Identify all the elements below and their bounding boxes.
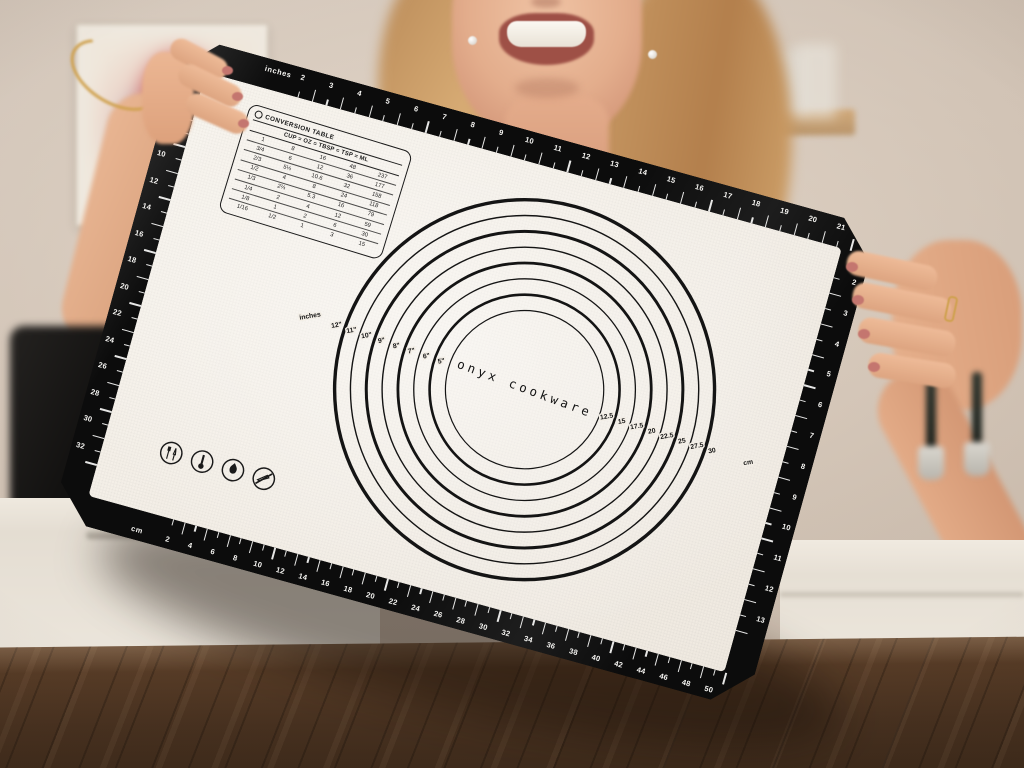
ruler-tick-minor <box>420 588 423 594</box>
ruler-tick-major <box>652 184 656 196</box>
ruler-number: 30 <box>473 620 493 633</box>
ruler-number: 20 <box>117 280 133 292</box>
ruler-number: 9 <box>491 126 511 139</box>
ruler-tick-major <box>226 535 230 547</box>
ruler-number: 32 <box>73 439 89 451</box>
ruler-number: 20 <box>361 589 381 602</box>
ruler-tick-minor <box>783 461 789 464</box>
ruler-tick-major <box>340 98 344 110</box>
chin-shadow <box>515 78 579 98</box>
ruler-number: 40 <box>586 651 606 664</box>
ruler-number: 44 <box>631 664 651 677</box>
ruler-tick-minor <box>510 613 513 619</box>
ruler-tick-minor <box>766 522 772 525</box>
ruler-number: 6 <box>203 545 223 558</box>
ruler-tick-major <box>595 168 599 180</box>
ruler-tick-major <box>829 293 841 297</box>
ruler-number: 14 <box>633 165 653 178</box>
circle-inch-label: 11" <box>346 326 357 335</box>
circle-cm-label: 17.5 <box>630 422 644 431</box>
ruler-tick-major <box>793 223 797 235</box>
circle-bullet-icon <box>254 110 264 120</box>
ruler-tick-major <box>680 192 684 204</box>
ruler-unit-label: inches <box>264 64 293 80</box>
ruler-number: 24 <box>102 333 118 345</box>
circle-unit-label-cm: cm <box>743 459 754 468</box>
ruler-tick-major <box>316 560 320 572</box>
circle-cm-label: 30 <box>708 447 717 455</box>
fingernail <box>868 362 880 372</box>
ruler-tick-major <box>587 635 591 647</box>
ruler-tick-major <box>770 507 782 511</box>
ruler-tick-minor <box>465 601 468 607</box>
circle-inch-label: 8" <box>392 342 400 350</box>
ruler-tick-major <box>144 249 156 253</box>
ruler-tick-major <box>610 641 614 653</box>
ruler-number: 4 <box>350 87 370 100</box>
ruler-number: 19 <box>775 204 795 217</box>
ruler-tick-minor <box>690 663 693 669</box>
ruler-tick-minor <box>749 584 755 587</box>
ruler-number: 10 <box>154 147 170 159</box>
ruler-number: 14 <box>293 570 313 583</box>
candle <box>972 372 982 450</box>
ruler-tick-major <box>821 323 833 327</box>
ruler-number: 17 <box>718 189 738 202</box>
ruler-tick-minor <box>757 553 763 556</box>
ruler-number: 8 <box>463 118 483 131</box>
ruler-tick-minor <box>217 532 220 538</box>
pearl-earring <box>648 50 657 59</box>
ruler-tick-major <box>85 461 97 465</box>
ruler-tick-major <box>737 208 741 220</box>
ruler-tick-major <box>765 215 769 227</box>
ruler-number: 12 <box>270 564 290 577</box>
ruler-tick-minor <box>622 645 625 651</box>
ruler-tick-major <box>407 585 411 597</box>
ruler-tick-major <box>204 529 208 541</box>
ruler-tick-major <box>181 523 185 535</box>
ruler-number: 38 <box>564 645 584 658</box>
ruler-number: 34 <box>519 633 539 646</box>
fingernail <box>846 262 858 272</box>
ruler-unit-label: cm <box>130 524 144 536</box>
ruler-number: 8 <box>795 460 811 472</box>
ruler-tick-minor <box>262 544 265 550</box>
ruler-tick-minor <box>668 657 671 663</box>
ruler-number: 11 <box>770 552 786 564</box>
ruler-number: 10 <box>778 521 794 533</box>
ruler-tick-major <box>804 384 816 388</box>
fingernail <box>238 119 249 128</box>
ruler-tick-major <box>565 629 569 641</box>
kitchen-photo-scene: inches 23456789101112131415161718192021 … <box>0 0 1024 768</box>
ruler-tick-minor <box>487 607 490 613</box>
ruler-number: 5 <box>821 368 837 380</box>
fingernail <box>858 329 870 339</box>
ruler-tick-major <box>722 673 726 685</box>
ruler-number: 10 <box>248 557 268 570</box>
ruler-tick-major <box>92 435 104 439</box>
ruler-tick-major <box>850 239 854 251</box>
ruler-tick-major <box>677 660 681 672</box>
ruler-tick-major <box>519 616 523 628</box>
ruler-tick-major <box>384 579 388 591</box>
candle-holder <box>964 442 990 476</box>
fingernail <box>222 66 233 75</box>
ruler-tick-major <box>538 153 542 165</box>
ruler-number: 24 <box>406 601 426 614</box>
ruler-tick-minor <box>791 430 797 433</box>
ruler-tick-minor <box>740 614 746 617</box>
ruler-tick-minor <box>713 670 716 676</box>
ruler-tick-major <box>368 105 372 117</box>
circle-inch-label: 12" <box>331 321 343 330</box>
candle-holder <box>918 446 944 480</box>
ruler-tick-minor <box>817 338 823 341</box>
ruler-number: 26 <box>95 359 111 371</box>
ruler-tick-minor <box>555 626 558 632</box>
ruler-tick-major <box>736 630 748 634</box>
ruler-number: 22 <box>383 595 403 608</box>
ruler-number: 18 <box>338 582 358 595</box>
ruler-number: 16 <box>131 227 147 239</box>
ruler-number: 12 <box>761 583 777 595</box>
ruler-number: 4 <box>829 337 845 349</box>
circle-inch-label: 10" <box>361 332 373 341</box>
ruler-tick-major <box>510 145 514 157</box>
ruler-tick-minor <box>352 569 355 575</box>
ruler-number: 36 <box>541 639 561 652</box>
ruler-number: 18 <box>124 253 140 265</box>
ruler-tick-major <box>397 113 401 125</box>
ruler-number: 26 <box>428 607 448 620</box>
ruler-tick-major <box>787 446 799 450</box>
ruler-number: 16 <box>690 181 710 194</box>
ruler-number: 48 <box>676 676 696 689</box>
ruler-tick-major <box>151 223 163 227</box>
counter-edge <box>780 592 1024 597</box>
ruler-number: 20 <box>803 212 823 225</box>
ruler-tick-major <box>249 541 253 553</box>
ruler-number: 32 <box>496 626 516 639</box>
ruler-tick-major <box>778 476 790 480</box>
ruler-tick-major <box>107 382 119 386</box>
ruler-tick-major <box>271 548 275 560</box>
ruler-tick-major <box>795 415 807 419</box>
ruler-tick-major <box>700 666 704 678</box>
ruler-number: 12 <box>146 174 162 186</box>
circle-cm-label: 22.5 <box>660 432 674 441</box>
teeth <box>507 21 586 47</box>
ruler-number: 8 <box>225 551 245 564</box>
ruler-number: 4 <box>180 539 200 552</box>
ruler-tick-major <box>623 176 627 188</box>
ruler-tick-major <box>115 355 127 359</box>
ruler-tick-major <box>425 121 429 133</box>
ruler-number: 2 <box>158 532 178 545</box>
ruler-tick-major <box>497 610 501 622</box>
ruler-number: 28 <box>87 386 103 398</box>
ruler-tick-major <box>429 591 433 603</box>
ruler-tick-major <box>312 90 316 102</box>
ruler-tick-major <box>294 554 298 566</box>
ruler-tick-major <box>474 604 478 616</box>
ruler-tick-major <box>129 302 141 306</box>
ruler-number: 18 <box>746 197 766 210</box>
ruler-number: 6 <box>406 102 426 115</box>
ruler-number: 15 <box>661 173 681 186</box>
ruler-tick-major <box>753 568 765 572</box>
ruler-tick-major <box>482 137 486 149</box>
ruler-tick-minor <box>397 582 400 588</box>
ruler-number: 6 <box>812 399 828 411</box>
ruler-tick-minor <box>329 563 332 569</box>
circle-inch-label: 9" <box>377 337 385 345</box>
ruler-tick-minor <box>442 594 445 600</box>
ruler-number: 13 <box>753 613 769 625</box>
ruler-number: 7 <box>804 429 820 441</box>
ruler-tick-major <box>159 196 171 200</box>
ruler-tick-major <box>137 276 149 280</box>
ruler-tick-minor <box>172 519 175 525</box>
ruler-tick-minor <box>800 400 806 403</box>
ruler-tick-major <box>655 654 659 666</box>
ruler-tick-major <box>122 329 134 333</box>
ruler-number: 42 <box>609 658 629 671</box>
ruler-number: 50 <box>699 683 719 696</box>
ruler-tick-minor <box>808 369 814 372</box>
pearl-earring <box>468 36 477 45</box>
ruler-number: 3 <box>321 79 341 92</box>
ruler-number: 7 <box>435 110 455 123</box>
ruler-number: 16 <box>316 576 336 589</box>
ruler-tick-major <box>812 354 824 358</box>
ruler-number: 2 <box>293 71 313 84</box>
circle-cm-label: 20 <box>648 428 657 436</box>
circle-unit-label-inches: inches <box>299 311 322 321</box>
ruler-tick-minor <box>194 526 197 532</box>
ruler-number: 28 <box>451 614 471 627</box>
ruler-tick-minor <box>600 638 603 644</box>
ruler-number: 10 <box>520 134 540 147</box>
ruler-number: 30 <box>80 412 96 424</box>
ruler-number: 5 <box>378 94 398 107</box>
ruler-tick-minor <box>307 557 310 563</box>
ruler-number: 22 <box>109 306 125 318</box>
fingernail <box>852 295 864 305</box>
fingernail <box>232 92 243 101</box>
ruler-number: 9 <box>787 491 803 503</box>
ruler-tick-major <box>761 538 773 542</box>
ruler-number: 46 <box>654 670 674 683</box>
candle <box>926 376 936 454</box>
ruler-tick-major <box>744 599 756 603</box>
ruler-tick-minor <box>825 308 831 311</box>
clear-glassware <box>796 44 836 118</box>
ruler-tick-major <box>632 648 636 660</box>
circle-cm-label: 25 <box>678 437 687 445</box>
ruler-tick-minor <box>577 632 580 638</box>
ruler-tick-minor <box>774 492 780 495</box>
ruler-number: 11 <box>548 142 568 155</box>
ruler-tick-major <box>708 200 712 212</box>
ruler-number: 12 <box>576 149 596 162</box>
ruler-tick-minor <box>532 619 535 625</box>
ruler-number: 14 <box>139 200 155 212</box>
ruler-tick-major <box>822 231 826 243</box>
ruler-tick-minor <box>834 277 840 280</box>
ruler-tick-major <box>452 598 456 610</box>
ruler-number: 3 <box>838 307 854 319</box>
ruler-tick-minor <box>239 538 242 544</box>
ruler-tick-major <box>362 573 366 585</box>
ruler-tick-minor <box>374 576 377 582</box>
ruler-number: 13 <box>605 157 625 170</box>
ruler-tick-major <box>542 623 546 635</box>
ruler-tick-major <box>166 170 178 174</box>
ruler-tick-major <box>453 129 457 141</box>
ruler-tick-minor <box>284 551 287 557</box>
ruler-tick-major <box>567 160 571 172</box>
ruler-tick-major <box>100 408 112 412</box>
ruler-tick-minor <box>645 651 648 657</box>
ruler-tick-major <box>339 566 343 578</box>
circle-cm-label: 27.5 <box>690 442 704 451</box>
circle-inch-label: 7" <box>407 347 415 355</box>
